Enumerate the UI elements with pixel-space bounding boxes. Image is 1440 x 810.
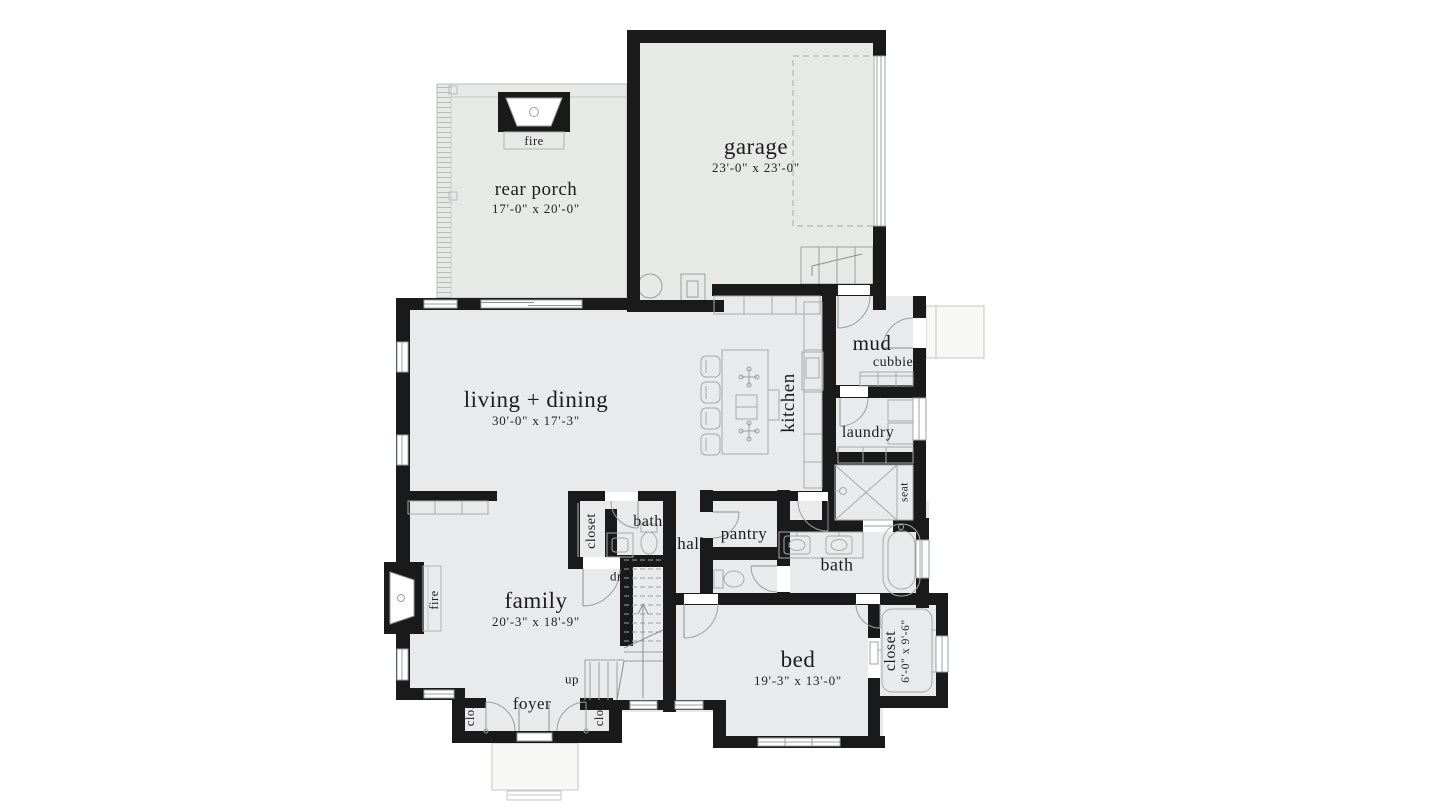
sliding-door bbox=[481, 300, 582, 308]
room-label-mud: mud bbox=[853, 331, 892, 355]
label-fire-porch: fire bbox=[524, 134, 543, 148]
label-stair-down: dn bbox=[610, 570, 624, 585]
front-porch bbox=[492, 743, 578, 800]
room-label-bath-master: bath bbox=[821, 555, 854, 576]
floor-plan-page: garage 23'-0" x 23'-0" rear porch 17'-0"… bbox=[0, 0, 1440, 810]
room-label-closet-bed: closet 6'-0" x 9'-6" bbox=[882, 619, 914, 683]
entry-stoop bbox=[926, 306, 984, 358]
floor-plan-drawing bbox=[0, 0, 1440, 810]
room-label-garage: garage 23'-0" x 23'-0" bbox=[712, 134, 800, 176]
room-label-living-dining: living + dining 30'-0" x 17'-3" bbox=[464, 387, 608, 429]
label-seat: seat bbox=[898, 482, 911, 502]
room-label-rear-porch: rear porch 17'-0" x 20'-0" bbox=[492, 179, 580, 217]
label-cubbies: cubbies bbox=[873, 355, 919, 371]
room-label-bath-hall: bath bbox=[633, 513, 663, 531]
pocket-door-panel bbox=[870, 642, 878, 664]
room-label-pantry: pantry bbox=[721, 524, 767, 544]
room-label-closet-hall: closet bbox=[584, 513, 600, 549]
room-label-kitchen: kitchen bbox=[778, 373, 800, 432]
room-label-laundry: laundry bbox=[842, 424, 894, 442]
room-label-foyer: foyer bbox=[513, 694, 551, 714]
label-fire-family: fire bbox=[427, 590, 441, 609]
label-stair-up: up bbox=[565, 673, 579, 688]
room-label-bed: bed 19'-3" x 13'-0" bbox=[754, 647, 842, 689]
label-closet-left: clo. bbox=[463, 706, 477, 726]
room-label-hall: hall bbox=[677, 534, 705, 554]
label-closet-right: clo. bbox=[592, 706, 606, 726]
room-label-family: family 20'-3" x 18'-9" bbox=[492, 588, 580, 630]
